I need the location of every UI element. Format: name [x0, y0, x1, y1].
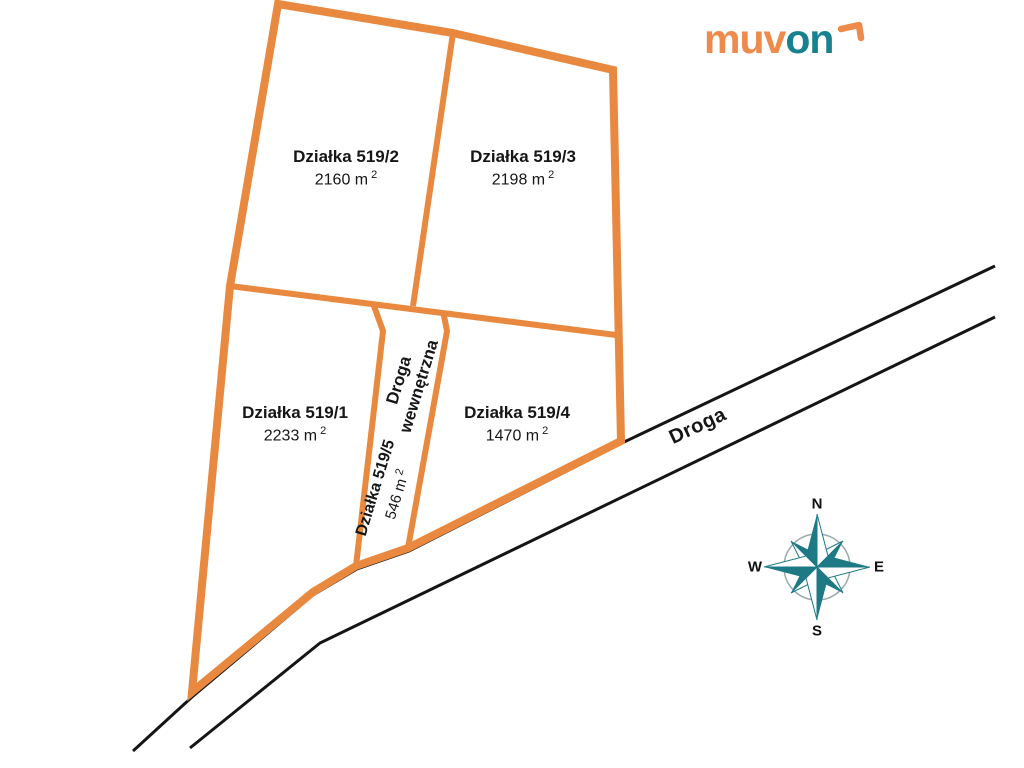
parcel-map-canvas: N E S W: [0, 0, 1024, 768]
main-road-edge-upper: [133, 266, 995, 751]
parcel-name: Działka 519/3: [433, 146, 613, 167]
compass-east-label: E: [874, 559, 884, 576]
parcel-area: 2160 m2: [256, 169, 436, 190]
parcel-label-519-3: Działka 519/3 2198 m2: [433, 146, 613, 191]
compass-north-label: N: [812, 496, 823, 513]
logo-arrow-icon: [838, 20, 868, 48]
parcel-area: 2198 m2: [433, 169, 613, 190]
parcel-label-519-1: Działka 519/1 2233 m2: [205, 402, 385, 447]
main-road-edge-lower: [190, 317, 995, 748]
logo-text-primary: muv: [704, 16, 785, 62]
parcel-area: 2233 m2: [205, 425, 385, 446]
compass-rose-icon: N E S W: [748, 496, 884, 640]
parcel-name: Działka 519/2: [256, 146, 436, 167]
parcel-name: Działka 519/4: [427, 402, 607, 423]
parcel-label-519-2: Działka 519/2 2160 m2: [256, 146, 436, 191]
muvon-logo: muvon: [704, 16, 833, 63]
compass-south-label: S: [812, 623, 822, 640]
parcel-label-519-4: Działka 519/4 1470 m2: [427, 402, 607, 447]
logo-text-secondary: on: [785, 16, 833, 62]
parcel-name: Działka 519/1: [205, 402, 385, 423]
parcel-area: 1470 m2: [427, 425, 607, 446]
compass-west-label: W: [748, 559, 763, 576]
